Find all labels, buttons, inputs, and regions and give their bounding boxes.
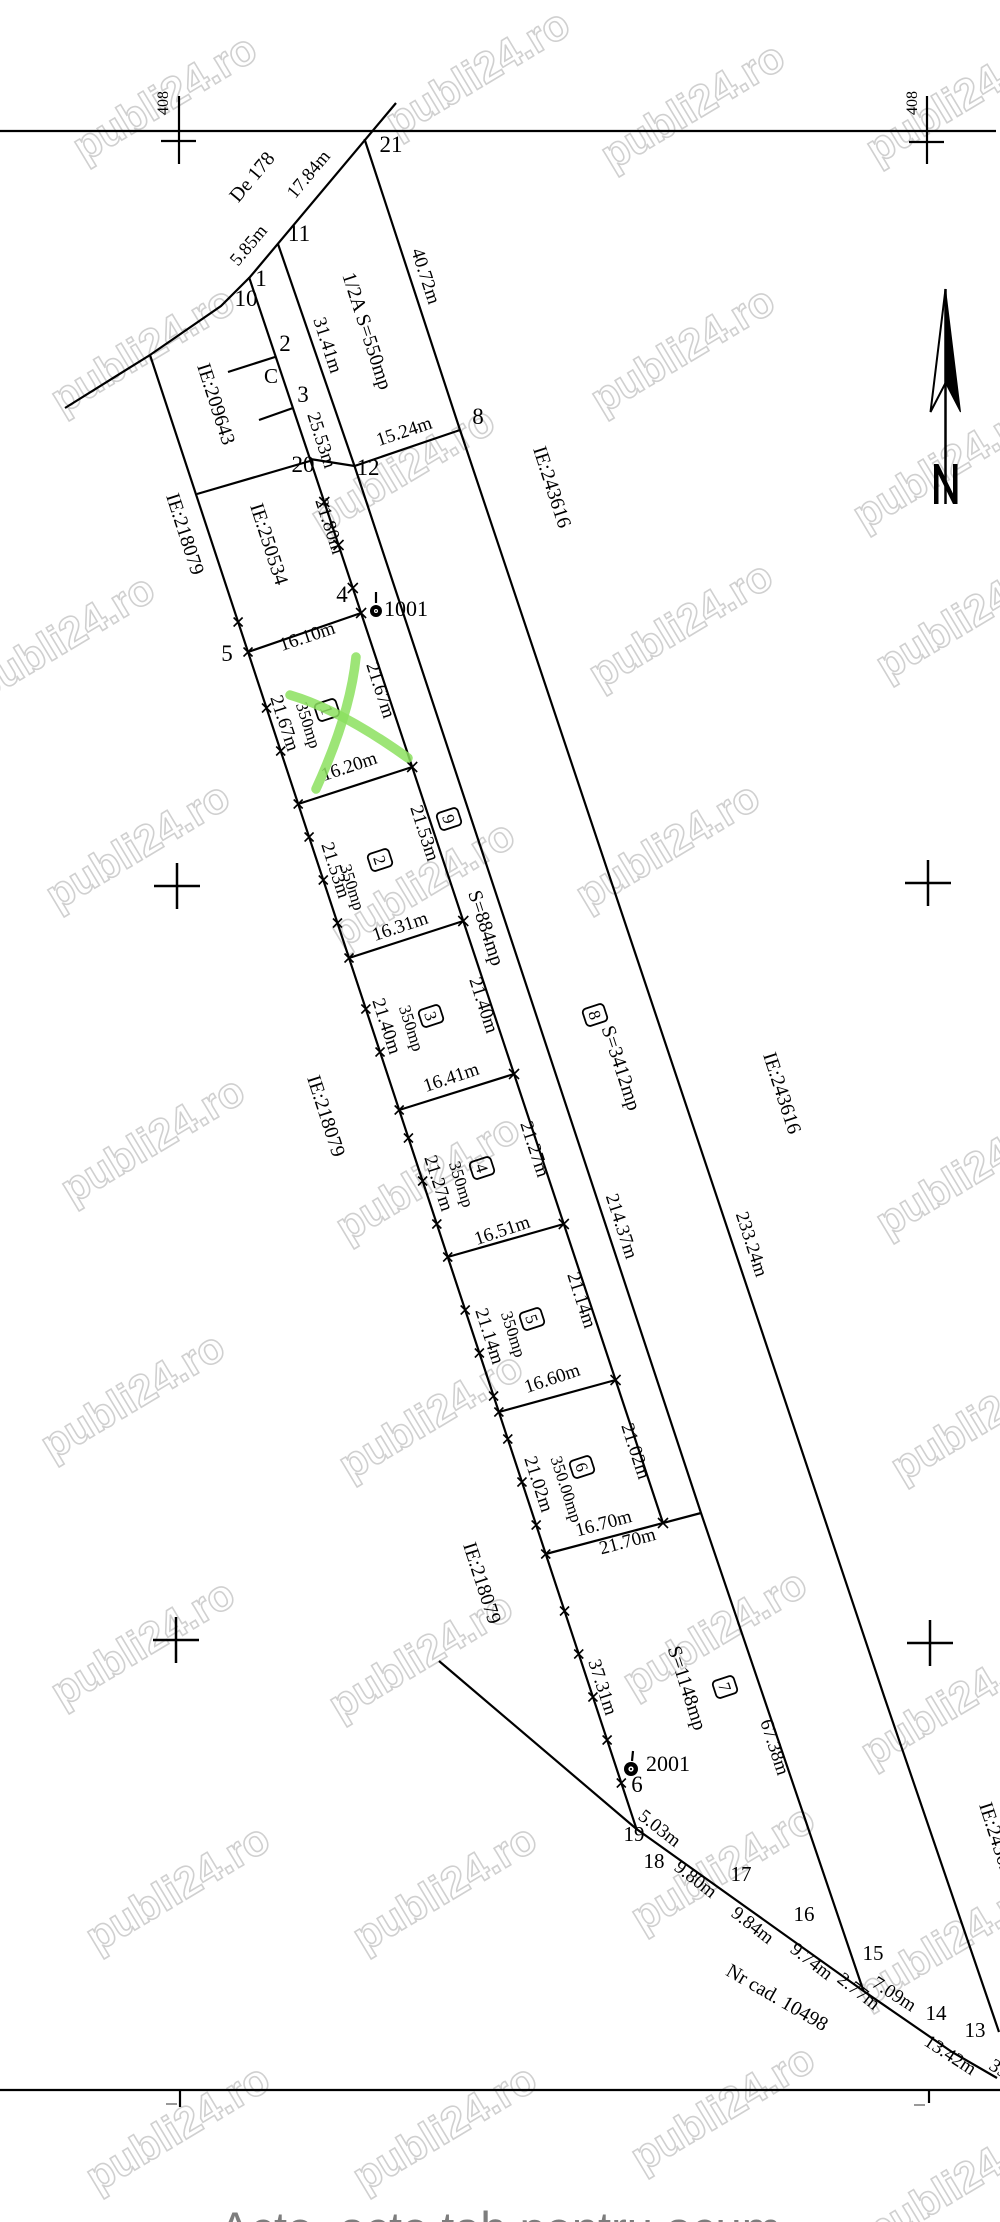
svg-text:2001: 2001 — [646, 1751, 690, 1776]
svg-text:11: 11 — [288, 221, 310, 246]
svg-text:17: 17 — [731, 1862, 752, 1886]
svg-text:14: 14 — [926, 2001, 948, 2025]
svg-text:1001: 1001 — [384, 596, 428, 621]
svg-text:C: C — [264, 364, 278, 388]
svg-text:8: 8 — [472, 404, 484, 429]
svg-text:4: 4 — [336, 582, 348, 607]
svg-text:21: 21 — [380, 132, 403, 157]
svg-text:15: 15 — [863, 1941, 884, 1965]
svg-text:12: 12 — [357, 455, 380, 480]
svg-text:18: 18 — [644, 1849, 665, 1873]
svg-text:16: 16 — [794, 1902, 815, 1926]
svg-text:3: 3 — [297, 382, 309, 407]
svg-text:408: 408 — [904, 91, 921, 115]
svg-text:13: 13 — [965, 2018, 986, 2042]
svg-text:5: 5 — [221, 641, 233, 666]
svg-text:20: 20 — [292, 452, 315, 477]
svg-text:2: 2 — [279, 331, 291, 356]
svg-text:Acte, acte tab pentru acum: Acte, acte tab pentru acum — [219, 2202, 781, 2222]
svg-text:408: 408 — [155, 91, 172, 115]
svg-text:10: 10 — [235, 286, 258, 311]
svg-text:6: 6 — [631, 1772, 643, 1797]
